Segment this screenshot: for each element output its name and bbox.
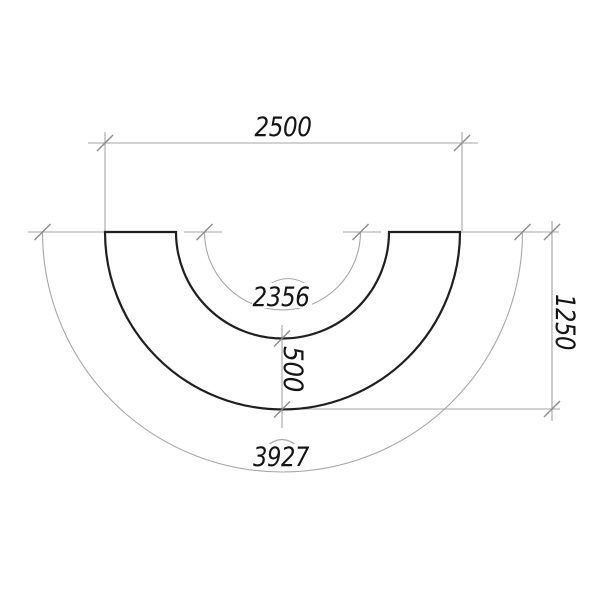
dimension-outer-arc-label: 3927 xyxy=(253,442,309,473)
technical-drawing-canvas: 2500 2356 500 1250 3927 xyxy=(0,0,600,600)
dimension-top-width xyxy=(88,132,478,231)
dimension-radius-height-label: 1250 xyxy=(549,294,580,350)
dimension-inner-arc-label: 2356 xyxy=(253,282,310,313)
dimension-top-width-label: 2500 xyxy=(255,112,312,143)
dimension-labels-layer: 2500 2356 500 1250 3927 xyxy=(253,112,581,473)
dimension-radius-height xyxy=(287,221,560,421)
half-annulus-drawing: 2500 2356 500 1250 3927 xyxy=(0,0,600,600)
dimension-ring-width-label: 500 xyxy=(277,346,308,392)
